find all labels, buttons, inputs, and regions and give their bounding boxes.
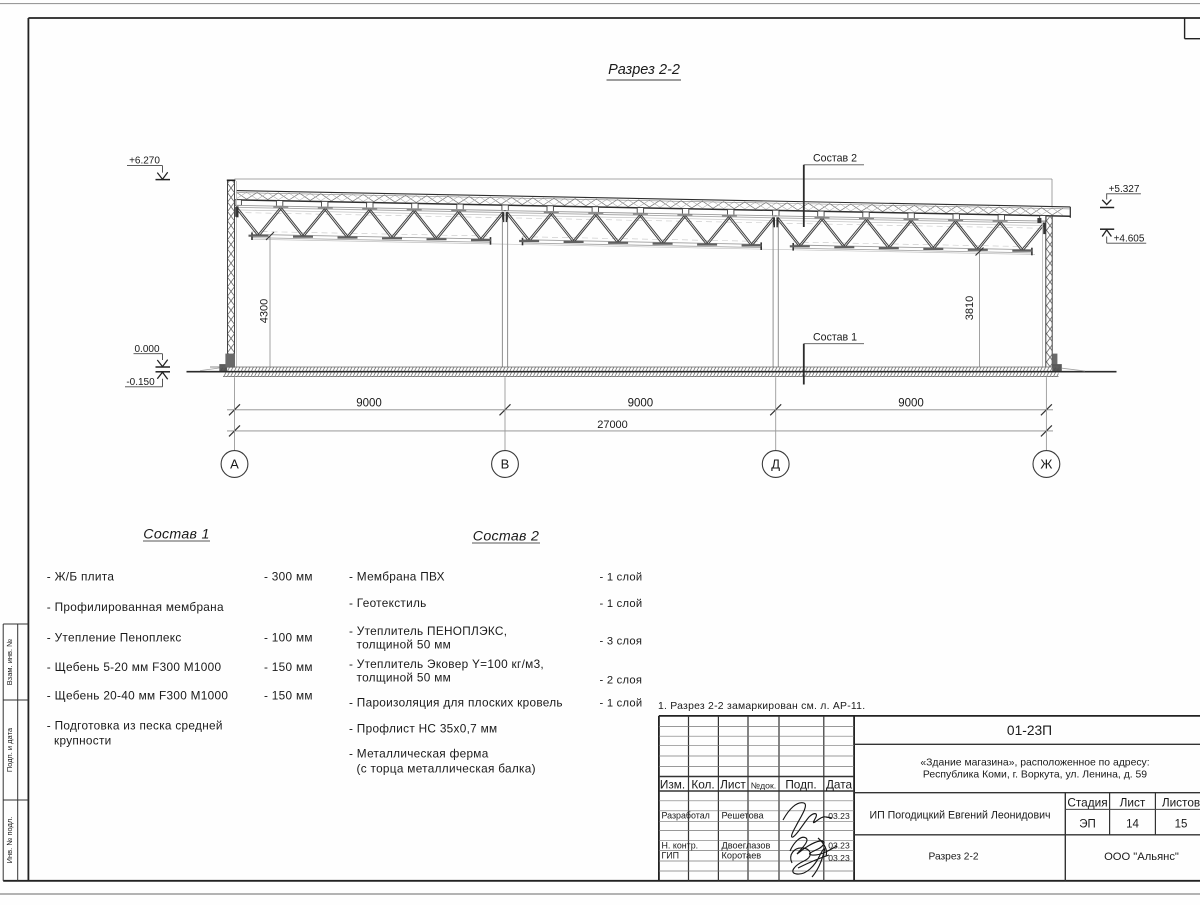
svg-text:Дата: Дата (826, 778, 853, 792)
svg-text:Двоеглазов: Двоеглазов (722, 840, 771, 850)
svg-text:27000: 27000 (597, 419, 628, 431)
svg-text:+6.270: +6.270 (129, 156, 160, 167)
svg-text:- Мембрана ПВХ: - Мембрана ПВХ (349, 570, 445, 584)
svg-text:толщиной 50 мм: толщиной 50 мм (357, 671, 452, 685)
svg-text:15: 15 (1175, 819, 1188, 831)
svg-text:Разрез 2-2: Разрез 2-2 (928, 852, 978, 863)
svg-text:Н. контр.: Н. контр. (662, 840, 699, 850)
svg-text:- 1 слой: - 1 слой (600, 698, 643, 710)
svg-text:- 300 мм: - 300 мм (264, 570, 313, 584)
svg-text:03.23: 03.23 (828, 811, 850, 821)
svg-text:Подп. и дата: Подп. и дата (5, 727, 14, 772)
svg-text:9000: 9000 (356, 398, 382, 410)
svg-text:01-23П: 01-23П (1007, 723, 1052, 738)
svg-text:А: А (230, 457, 239, 472)
svg-text:Инв. № подл.: Инв. № подл. (5, 817, 14, 864)
svg-text:4300: 4300 (259, 299, 271, 323)
svg-text:- Ж/Б плита: - Ж/Б плита (47, 570, 115, 584)
svg-text:- 3 слоя: - 3 слоя (600, 636, 643, 648)
svg-text:Решетова: Решетова (722, 811, 765, 821)
svg-text:Взам. инв. №: Взам. инв. № (5, 639, 14, 685)
svg-text:- Пароизоляция для плоских кро: - Пароизоляция для плоских кровель (349, 696, 563, 710)
svg-text:- 1 слой: - 1 слой (600, 598, 643, 610)
svg-text:Лист: Лист (720, 778, 746, 792)
svg-text:«Здание магазина», расположенн: «Здание магазина», расположенное по адре… (920, 758, 1149, 769)
svg-text:- 100 мм: - 100 мм (264, 631, 313, 645)
svg-text:9000: 9000 (628, 398, 654, 410)
svg-text:Ж: Ж (1040, 457, 1052, 472)
svg-text:Лист: Лист (1120, 796, 1146, 810)
svg-text:- 150 мм: - 150 мм (264, 689, 313, 703)
svg-text:- 150 мм: - 150 мм (264, 660, 313, 674)
svg-text:№док.: №док. (751, 781, 776, 791)
svg-text:Изм.: Изм. (660, 778, 685, 792)
svg-text:ИП Погодицкий Евгений Леонидов: ИП Погодицкий Евгений Леонидович (869, 810, 1050, 822)
svg-text:(с торца металлическая балка): (с торца металлическая балка) (357, 762, 536, 776)
svg-text:- Металлическая ферма: - Металлическая ферма (349, 747, 489, 761)
svg-text:ООО "Альянс": ООО "Альянс" (1104, 851, 1179, 863)
svg-text:- Подготовка из песка средней: - Подготовка из песка средней (47, 719, 223, 733)
svg-text:Разработал: Разработал (662, 811, 710, 821)
svg-text:+5.327: +5.327 (1109, 184, 1140, 195)
svg-text:Д: Д (771, 457, 780, 472)
svg-text:ГИП: ГИП (662, 851, 680, 861)
svg-text:- Утеплитель Эковер Y=100 кг/м: - Утеплитель Эковер Y=100 кг/м3, (349, 657, 544, 671)
svg-text:Состав 2: Состав 2 (473, 529, 539, 545)
svg-text:9000: 9000 (898, 398, 924, 410)
svg-text:крупности: крупности (54, 734, 112, 748)
svg-text:- Профлист НС 35х0,7 мм: - Профлист НС 35х0,7 мм (349, 722, 497, 736)
svg-text:+4.605: +4.605 (1114, 234, 1145, 245)
svg-text:- Профилированная мембрана: - Профилированная мембрана (47, 600, 224, 614)
svg-text:03.23: 03.23 (828, 853, 850, 863)
svg-text:ЭП: ЭП (1079, 819, 1096, 831)
svg-text:Листов: Листов (1162, 796, 1200, 810)
svg-text:- Щебень 20-40 мм F300 М1000: - Щебень 20-40 мм F300 М1000 (47, 689, 229, 703)
svg-text:Стадия: Стадия (1067, 796, 1107, 810)
svg-text:Состав 1: Состав 1 (143, 527, 209, 543)
svg-text:Состав 1: Состав 1 (813, 331, 857, 343)
svg-text:В: В (501, 457, 510, 472)
svg-text:Состав 2: Состав 2 (813, 152, 857, 164)
svg-text:- Геотекстиль: - Геотекстиль (349, 596, 427, 610)
svg-text:14: 14 (1126, 819, 1139, 831)
svg-text:- Щебень 5-20 мм F300 М1000: - Щебень 5-20 мм F300 М1000 (47, 660, 222, 674)
svg-text:- 2 слоя: - 2 слоя (600, 675, 643, 687)
svg-text:- 1 слой: - 1 слой (600, 572, 643, 584)
svg-text:Разрез 2-2: Разрез 2-2 (608, 62, 680, 78)
svg-text:Республика Коми, г. Воркута, у: Республика Коми, г. Воркута, ул. Ленина,… (923, 769, 1147, 781)
svg-text:- Утепление Пеноплекс: - Утепление Пеноплекс (47, 631, 182, 645)
svg-text:толщиной 50 мм: толщиной 50 мм (357, 638, 452, 652)
svg-text:Подп.: Подп. (785, 778, 816, 792)
svg-text:0.000: 0.000 (134, 344, 159, 355)
svg-text:3810: 3810 (964, 296, 976, 320)
svg-text:Кол.: Кол. (691, 778, 714, 792)
svg-text:Коротаев: Коротаев (722, 851, 762, 861)
svg-text:- Утеплитель ПЕНОПЛЭКС,: - Утеплитель ПЕНОПЛЭКС, (349, 624, 507, 638)
svg-text:1. Разрез 2-2 замаркирован см.: 1. Разрез 2-2 замаркирован см. л. АР-11. (658, 701, 865, 712)
